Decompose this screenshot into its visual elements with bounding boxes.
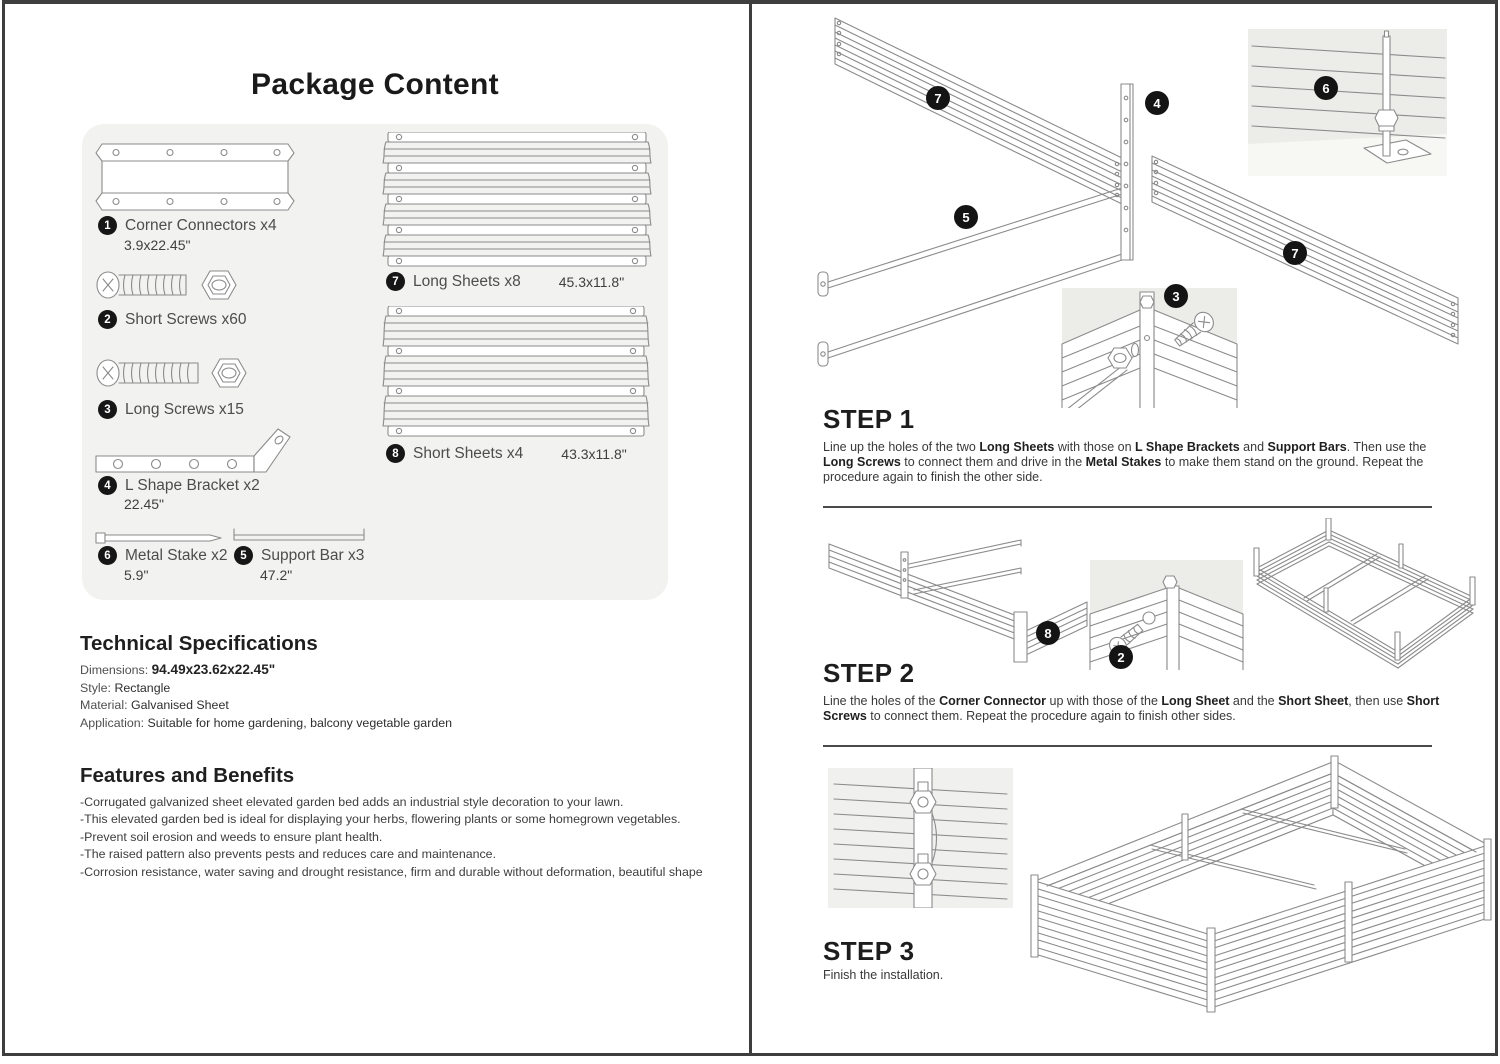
part-item-7: 7 Long Sheets x8 45.3x11.8" [386, 272, 624, 291]
part-item-4: 4 L Shape Bracket x2 [98, 476, 260, 495]
part-dim: 47.2" [260, 567, 292, 583]
callout-metal-stake: 6 [1314, 76, 1338, 100]
part-number-badge: 3 [98, 400, 117, 419]
feature-bullet: -This elevated garden bed is ideal for d… [80, 811, 703, 828]
feature-bullet: -Corrosion resistance, water saving and … [80, 864, 703, 881]
part-label: Metal Stake x2 [125, 547, 228, 565]
part-number-badge: 7 [386, 272, 405, 291]
support-bar-drawing [228, 526, 370, 546]
part-item-5: 5 Support Bar x3 [234, 546, 364, 565]
step2-diagram [815, 518, 1480, 670]
step3-body: Finish the installation. [823, 968, 1223, 983]
step1-inset-screw [1062, 288, 1237, 408]
part-number-badge: 4 [98, 476, 117, 495]
short-sheets-drawing [382, 306, 652, 440]
part-number-badge: 8 [386, 444, 405, 463]
package-content-title: Package Content [0, 68, 750, 102]
feature-bullet: -The raised pattern also prevents pests … [80, 846, 703, 863]
step1-inset-stake [1248, 29, 1447, 176]
part-number-badge: 5 [234, 546, 253, 565]
long-screw-drawing [94, 350, 256, 396]
part-number-badge: 6 [98, 546, 117, 565]
spec-row: Dimensions: 94.49x23.62x22.45" [80, 661, 452, 680]
long-sheets-drawing [382, 132, 654, 272]
short-screw-drawing [94, 262, 246, 308]
corner-connector-drawing [94, 140, 296, 214]
feature-bullet: -Corrugated galvanized sheet elevated ga… [80, 794, 703, 811]
step-divider-1 [823, 506, 1432, 508]
metal-stake-drawing [94, 530, 226, 546]
callout-short-sheet: 8 [1036, 621, 1060, 645]
part-dim: 5.9" [124, 567, 148, 583]
l-bracket-drawing [94, 426, 306, 482]
callout-support-bar: 5 [954, 205, 978, 229]
part-label: L Shape Bracket x2 [125, 477, 260, 495]
step-divider-2 [823, 745, 1432, 747]
part-label: Support Bar x3 [261, 547, 364, 565]
spec-row: Material: Galvanised Sheet [80, 697, 452, 715]
part-label: Long Screws x15 [125, 401, 244, 419]
specs-list: Dimensions: 94.49x23.62x22.45" Style: Re… [80, 661, 452, 732]
callout-long-sheet: 7 [926, 86, 950, 110]
callout-long-sheet-2: 7 [1283, 241, 1307, 265]
features-list: -Corrugated galvanized sheet elevated ga… [80, 794, 703, 881]
parts-box: 1 Corner Connectors x4 3.9x22.45" 2 Shor… [82, 124, 668, 600]
spec-row: Style: Rectangle [80, 680, 452, 698]
step1-diagram [790, 6, 1490, 408]
part-item-3: 3 Long Screws x15 [98, 400, 244, 419]
features-title: Features and Benefits [80, 764, 294, 788]
part-item-6: 6 Metal Stake x2 [98, 546, 228, 565]
part-dim: 22.45" [124, 496, 164, 512]
part-item-2: 2 Short Screws x60 [98, 310, 246, 329]
part-item-1: 1 Corner Connectors x4 [98, 216, 277, 235]
step2-title: STEP 2 [823, 658, 915, 689]
part-number-badge: 1 [98, 216, 117, 235]
callout-short-screw: 2 [1109, 645, 1133, 669]
step3-title: STEP 3 [823, 936, 915, 967]
part-label: Long Sheets x8 [413, 273, 521, 291]
instruction-sheet: Package Content 1 Corner Connectors x4 3… [0, 0, 1500, 1064]
step1-body: Line up the holes of the two Long Sheets… [823, 440, 1439, 485]
step1-title: STEP 1 [823, 404, 915, 435]
feature-bullet: -Prevent soil erosion and weeds to ensur… [80, 829, 703, 846]
step2-right-assembly [1254, 518, 1475, 668]
part-item-8: 8 Short Sheets x4 43.3x11.8" [386, 444, 627, 463]
part-dim: 43.3x11.8" [561, 446, 626, 462]
center-divider [749, 0, 752, 1056]
step2-body: Line the holes of the Corner Connector u… [823, 694, 1463, 724]
specs-title: Technical Specifications [80, 632, 318, 656]
step3-inset-bolts [828, 768, 1013, 908]
part-number-badge: 2 [98, 310, 117, 329]
callout-long-screw: 3 [1164, 284, 1188, 308]
part-dim: 45.3x11.8" [559, 274, 624, 290]
part-dim: 3.9x22.45" [124, 237, 190, 253]
part-label: Corner Connectors x4 [125, 217, 277, 235]
part-label: Short Screws x60 [125, 311, 246, 329]
callout-l-bracket: 4 [1145, 91, 1169, 115]
spec-row: Application: Suitable for home gardening… [80, 715, 452, 733]
part-label: Short Sheets x4 [413, 445, 523, 463]
